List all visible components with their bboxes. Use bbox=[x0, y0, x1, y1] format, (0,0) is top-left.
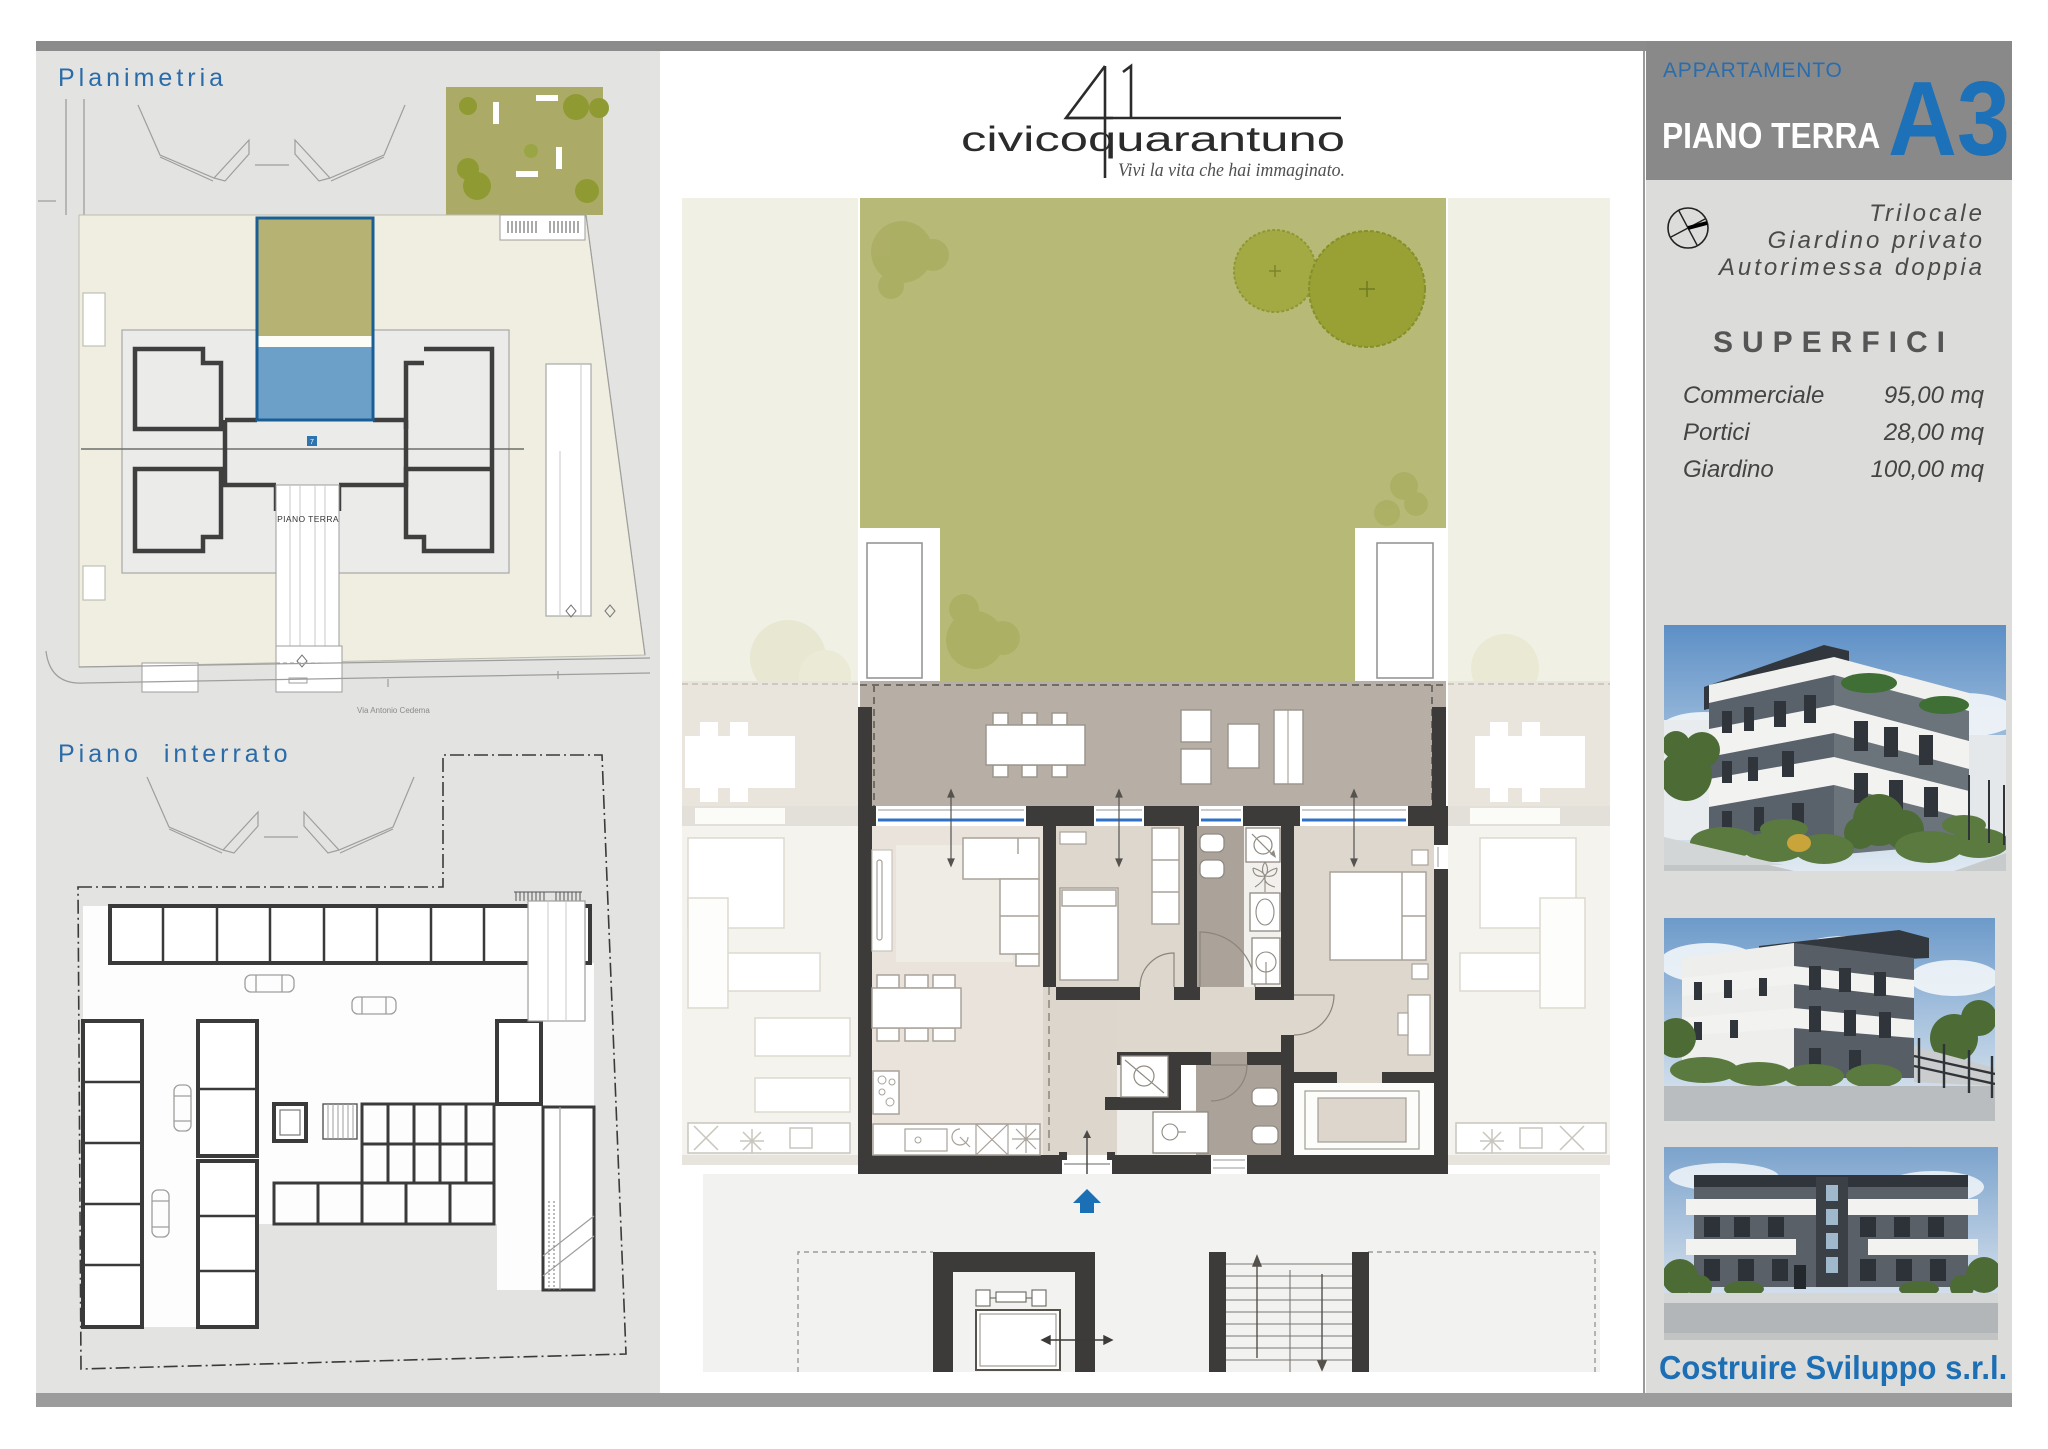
svg-text:Vivi la vita che hai immaginat: Vivi la vita che hai immaginato. bbox=[1118, 160, 1345, 181]
svg-text:PIANO TERRA: PIANO TERRA bbox=[277, 514, 339, 524]
svg-text:7: 7 bbox=[310, 439, 314, 446]
svg-text:Via Antonio Cedema: Via Antonio Cedema bbox=[357, 706, 430, 715]
svg-text:civicoquarantuno: civicoquarantuno bbox=[961, 120, 1345, 159]
